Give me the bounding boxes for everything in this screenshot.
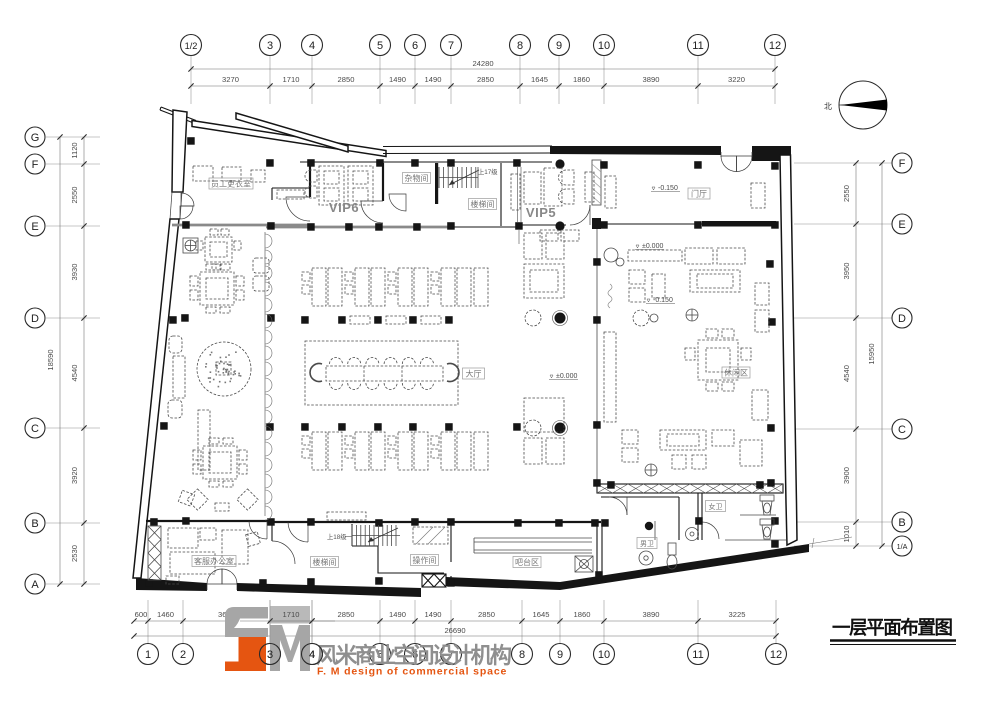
svg-text:B: B	[898, 517, 905, 529]
svg-text:上17级: 上17级	[478, 167, 498, 176]
svg-text:1120: 1120	[70, 142, 79, 158]
svg-text:2850: 2850	[477, 75, 494, 84]
svg-text:吧台区: 吧台区	[515, 557, 539, 567]
svg-text:1460: 1460	[157, 610, 174, 619]
svg-text:600: 600	[135, 610, 148, 619]
svg-text:2850: 2850	[338, 75, 355, 84]
svg-text:15950: 15950	[867, 343, 876, 364]
svg-text:D: D	[31, 313, 39, 325]
svg-text:3890: 3890	[643, 75, 660, 84]
svg-text:2: 2	[180, 649, 186, 661]
svg-text:11: 11	[692, 40, 703, 52]
svg-text:风米商业空间设计机构: 风米商业空间设计机构	[316, 643, 512, 668]
svg-text:1860: 1860	[574, 610, 591, 619]
svg-text:3950: 3950	[842, 263, 851, 280]
svg-text:操作间: 操作间	[413, 555, 437, 565]
svg-text:北: 北	[824, 102, 832, 111]
svg-text:1490: 1490	[389, 610, 406, 619]
svg-text:3: 3	[267, 649, 273, 661]
svg-text:B: B	[31, 518, 38, 530]
svg-text:1645: 1645	[533, 610, 550, 619]
svg-text:24280: 24280	[472, 59, 493, 68]
svg-text:4540: 4540	[70, 365, 79, 382]
svg-text:4540: 4540	[842, 365, 851, 382]
svg-text:1/A: 1/A	[897, 542, 908, 551]
svg-text:男卫: 男卫	[640, 540, 654, 548]
svg-text:休闲区: 休闲区	[724, 367, 748, 377]
svg-text:1490: 1490	[425, 610, 442, 619]
svg-text:客服办公室: 客服办公室	[194, 556, 234, 566]
svg-text:-0.150: -0.150	[658, 185, 678, 192]
svg-text:2850: 2850	[478, 610, 495, 619]
svg-text:VIP6: VIP6	[329, 200, 359, 215]
svg-text:F. M design of commercial spac: F. M design of commercial space	[317, 666, 507, 678]
svg-text:G: G	[31, 132, 40, 144]
svg-text:D: D	[898, 313, 906, 325]
svg-text:2550: 2550	[842, 185, 851, 202]
svg-text:18590: 18590	[46, 349, 55, 370]
svg-text:3890: 3890	[643, 610, 660, 619]
svg-text:3270: 3270	[222, 75, 239, 84]
svg-text:11: 11	[692, 649, 703, 661]
svg-text:±0.000: ±0.000	[642, 243, 663, 250]
svg-text:12: 12	[770, 649, 782, 661]
svg-text:1710: 1710	[283, 75, 300, 84]
svg-text:4: 4	[309, 40, 315, 52]
svg-text:F: F	[899, 158, 906, 170]
svg-text:8: 8	[519, 649, 525, 661]
svg-text:1710: 1710	[283, 610, 300, 619]
svg-text:杂物间: 杂物间	[405, 173, 429, 183]
svg-text:10: 10	[598, 649, 610, 661]
svg-text:楼梯间: 楼梯间	[471, 199, 495, 209]
svg-text:F: F	[32, 159, 39, 171]
svg-text:上18级: 上18级	[327, 532, 347, 541]
svg-text:3: 3	[267, 40, 273, 52]
svg-text:E: E	[31, 221, 38, 233]
svg-text:2850: 2850	[338, 610, 355, 619]
svg-text:1490: 1490	[389, 75, 406, 84]
svg-text:3930: 3930	[70, 264, 79, 281]
svg-text:1: 1	[145, 649, 151, 661]
svg-text:1010: 1010	[842, 526, 851, 543]
svg-text:E: E	[898, 219, 905, 231]
svg-text:1/2: 1/2	[185, 41, 198, 51]
svg-text:-0.150: -0.150	[653, 297, 673, 304]
svg-text:5: 5	[377, 40, 383, 52]
svg-text:3920: 3920	[70, 467, 79, 484]
svg-text:3225: 3225	[729, 610, 746, 619]
svg-text:±0.000: ±0.000	[556, 373, 577, 380]
svg-text:C: C	[898, 424, 906, 436]
svg-text:门厅: 门厅	[691, 188, 707, 198]
svg-text:10: 10	[598, 40, 610, 52]
svg-text:6: 6	[412, 40, 418, 52]
svg-text:1645: 1645	[531, 75, 548, 84]
svg-text:8: 8	[517, 40, 523, 52]
svg-text:VIP5: VIP5	[526, 205, 556, 220]
svg-text:9: 9	[557, 649, 563, 661]
svg-text:26690: 26690	[444, 626, 465, 635]
svg-text:9: 9	[556, 40, 562, 52]
svg-text:1490: 1490	[425, 75, 442, 84]
svg-text:C: C	[31, 423, 39, 435]
svg-text:12: 12	[769, 40, 781, 52]
svg-text:1860: 1860	[573, 75, 590, 84]
svg-text:2530: 2530	[70, 545, 79, 562]
svg-text:楼梯间: 楼梯间	[313, 557, 337, 567]
svg-text:7: 7	[448, 40, 454, 52]
svg-text:3900: 3900	[842, 467, 851, 484]
svg-text:一层平面布置图: 一层平面布置图	[832, 617, 953, 638]
svg-text:2550: 2550	[70, 187, 79, 204]
svg-text:大厅: 大厅	[466, 368, 482, 378]
svg-text:4: 4	[309, 649, 315, 661]
svg-text:3220: 3220	[728, 75, 745, 84]
svg-text:员工更衣室: 员工更衣室	[211, 178, 251, 188]
svg-text:A: A	[31, 579, 39, 591]
svg-text:女卫: 女卫	[709, 502, 723, 511]
